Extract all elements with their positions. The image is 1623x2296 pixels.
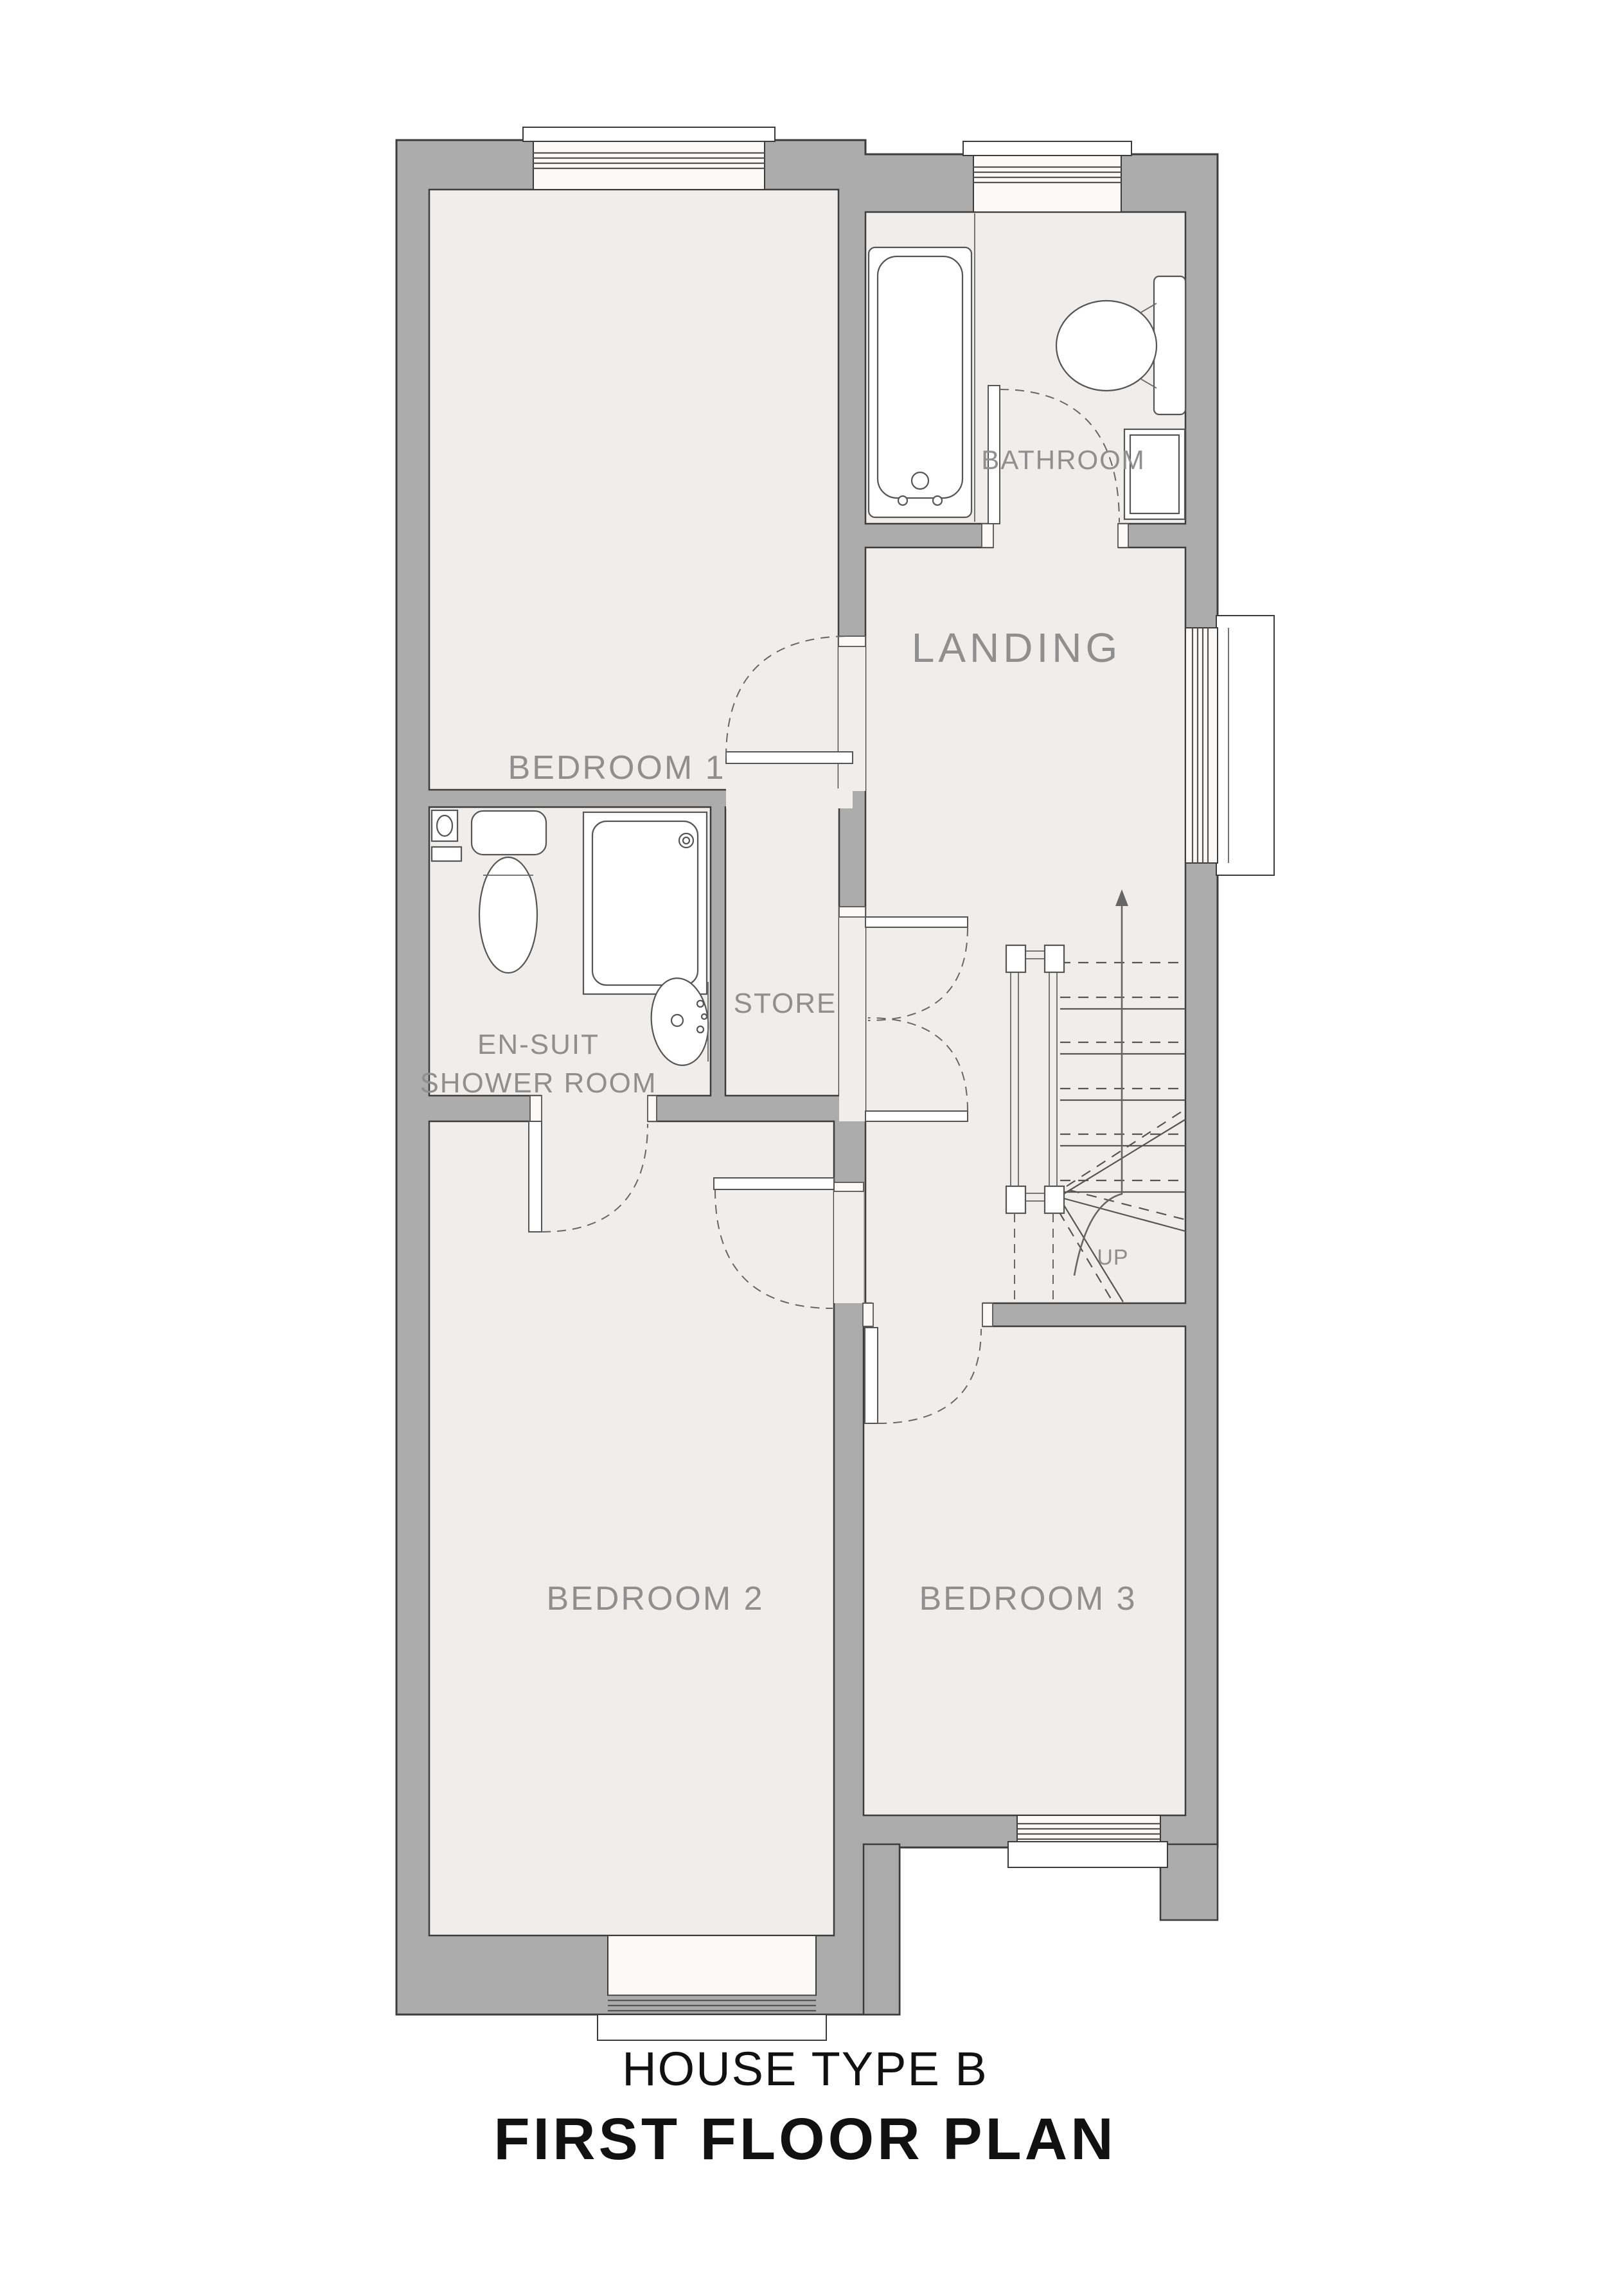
doorway-store: [839, 917, 865, 1121]
floor-plan-drawing: BEDROOM 1 BATHROOM LANDING EN-SUIT SHOWE…: [0, 0, 1623, 2296]
title-floor-plan: FIRST FLOOR PLAN: [493, 2106, 1116, 2172]
label-bedroom1: BEDROOM 1: [508, 749, 725, 787]
label-stairs-up: UP: [1097, 1245, 1128, 1270]
room-store-floor: [725, 807, 839, 1096]
label-bedroom3: BEDROOM 3: [919, 1580, 1137, 1617]
bath-icon: [869, 213, 975, 522]
window-bathroom: [963, 141, 1131, 212]
room-bedroom1-floor: [429, 190, 838, 790]
shower-tray-icon: [583, 812, 707, 994]
window-bedroom2: [598, 1936, 826, 2040]
doorway-bedroom2: [834, 1190, 864, 1303]
wall-step-column: [864, 1844, 900, 2015]
wall-bottom-right-block: [1160, 1844, 1218, 1920]
floor-plan-page: BEDROOM 1 BATHROOM LANDING EN-SUIT SHOWE…: [0, 0, 1623, 2296]
label-bedroom2: BEDROOM 2: [546, 1580, 764, 1617]
doorway-bedroom1: [838, 636, 865, 791]
window-bedroom3: [1008, 1815, 1167, 1867]
soil-pipe-icon: [432, 810, 461, 861]
room-bedroom3-floor: [864, 1326, 1185, 1815]
label-store: STORE: [734, 988, 837, 1019]
window-landing: [1185, 616, 1274, 875]
label-ensuite-line2: SHOWER ROOM: [420, 1067, 657, 1099]
label-landing: LANDING: [912, 625, 1122, 671]
doorway-bedroom3: [872, 1302, 982, 1328]
doorway-bedroom1-recess: [726, 788, 853, 808]
label-bathroom: BATHROOM: [981, 445, 1146, 475]
label-ensuite-line1: EN-SUIT: [477, 1029, 599, 1060]
window-bedroom1: [523, 127, 775, 190]
room-bedroom2-floor: [429, 1121, 834, 1936]
doorway-bathroom: [993, 522, 1118, 549]
title-house-type: HOUSE TYPE B: [622, 2042, 988, 2096]
